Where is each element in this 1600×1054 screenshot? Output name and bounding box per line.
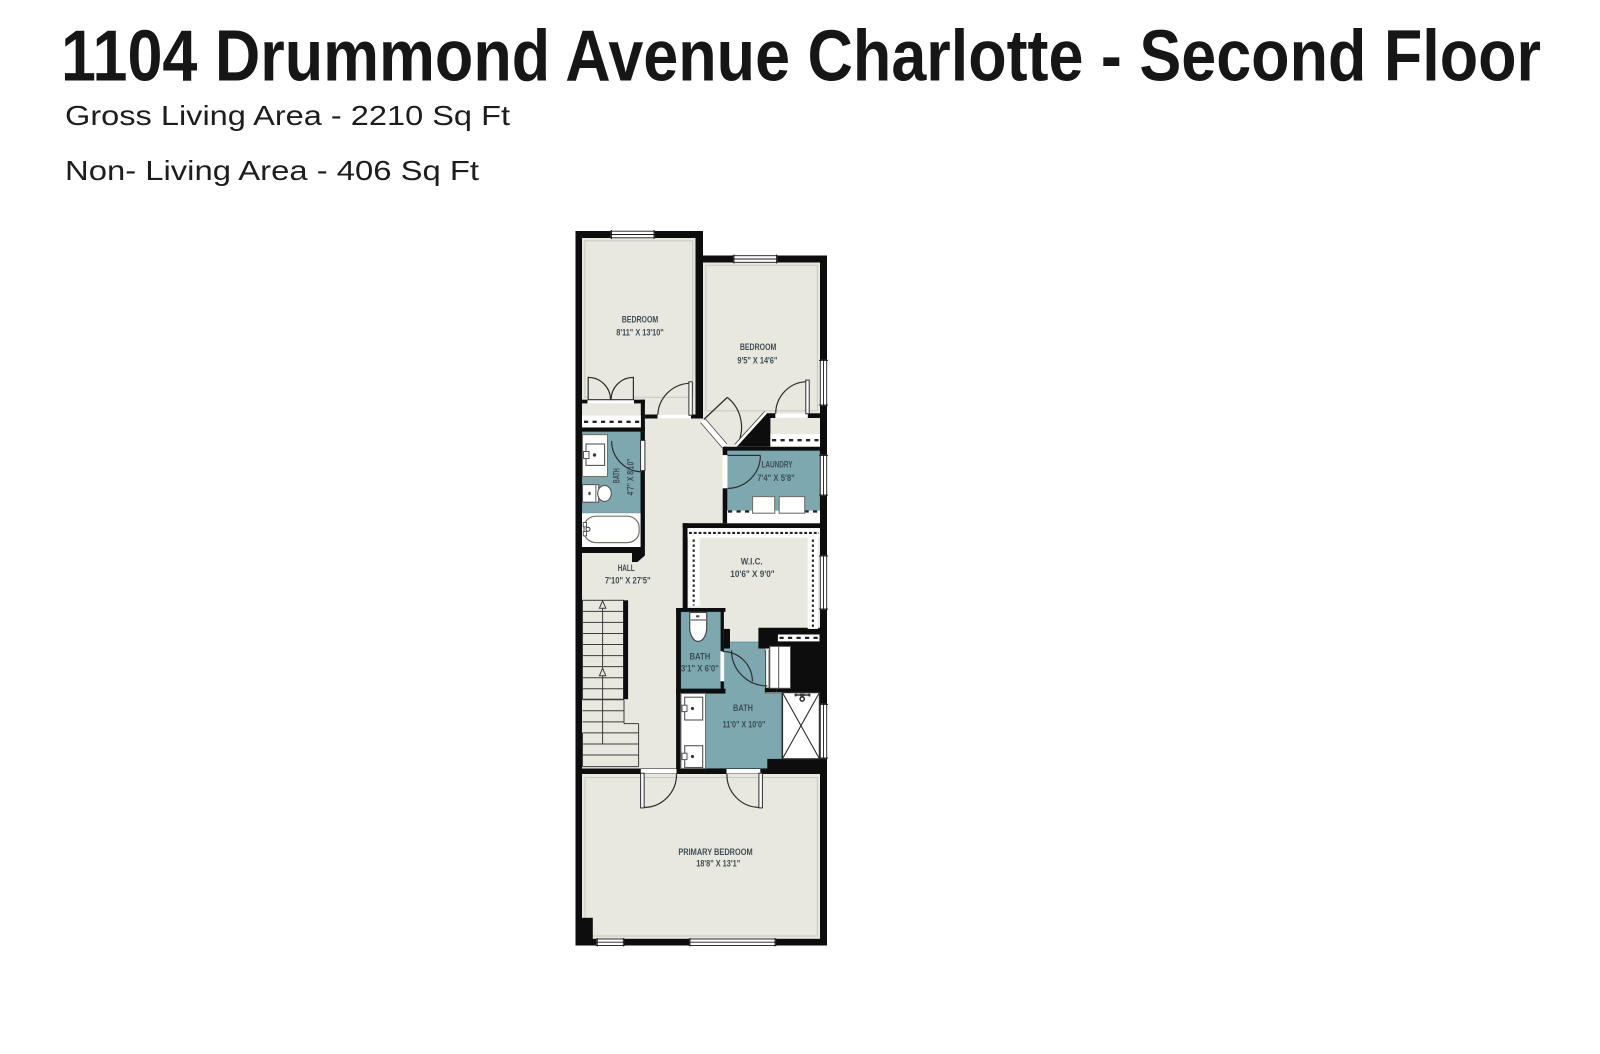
svg-text:W.I.C.: W.I.C. bbox=[741, 557, 763, 568]
svg-text:BEDROOM: BEDROOM bbox=[622, 315, 659, 326]
svg-text:11'0" X 10'0": 11'0" X 10'0" bbox=[723, 720, 766, 730]
svg-text:Non- Living Area - 406 Sq Ft: Non- Living Area - 406 Sq Ft bbox=[65, 155, 479, 186]
svg-text:1104 Drummond Avenue Charlotte: 1104 Drummond Avenue Charlotte - Second … bbox=[61, 17, 1541, 97]
svg-text:9'5" X 14'6": 9'5" X 14'6" bbox=[737, 355, 777, 365]
svg-text:7'4" X 5'8": 7'4" X 5'8" bbox=[757, 473, 795, 483]
svg-text:8'11" X 13'10": 8'11" X 13'10" bbox=[616, 328, 664, 338]
svg-text:BEDROOM: BEDROOM bbox=[740, 342, 777, 353]
svg-text:BATH: BATH bbox=[733, 703, 753, 714]
svg-text:10'6" X 9'0": 10'6" X 9'0" bbox=[730, 569, 774, 579]
svg-text:BATH: BATH bbox=[612, 468, 623, 483]
svg-text:PRIMARY BEDROOM: PRIMARY BEDROOM bbox=[678, 847, 752, 858]
svg-text:HALL: HALL bbox=[618, 563, 635, 574]
svg-text:3'1" X 6'0": 3'1" X 6'0" bbox=[681, 664, 719, 674]
svg-text:BATH: BATH bbox=[689, 651, 710, 662]
svg-text:LAUNDRY: LAUNDRY bbox=[762, 459, 793, 470]
svg-text:4'7" X 8'10": 4'7" X 8'10" bbox=[626, 459, 636, 496]
svg-text:18'8" X 13'1": 18'8" X 13'1" bbox=[696, 859, 740, 869]
svg-text:7'10" X 27'5": 7'10" X 27'5" bbox=[605, 575, 651, 585]
svg-text:Gross Living Area - 2210 Sq Ft: Gross Living Area - 2210 Sq Ft bbox=[65, 100, 510, 131]
